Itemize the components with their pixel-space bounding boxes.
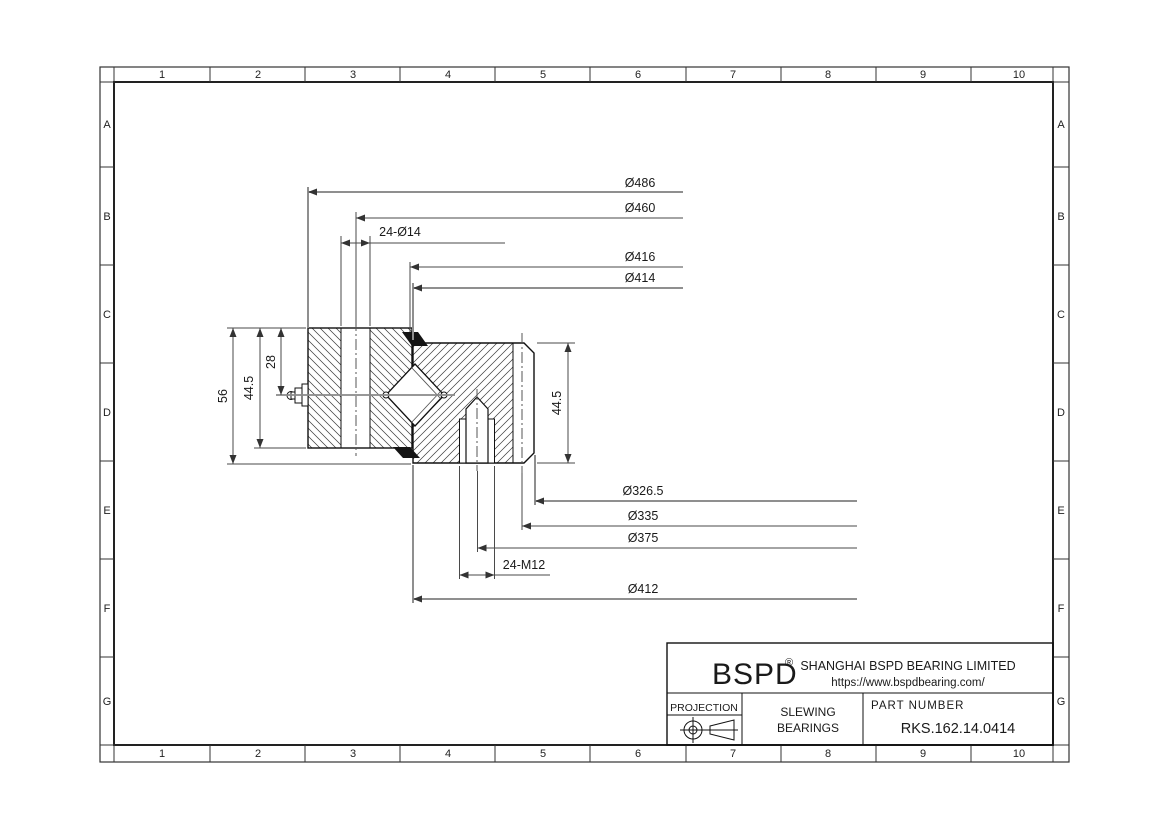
part-number-value: RKS.162.14.0414	[901, 721, 1015, 737]
row-label-right: C	[1057, 309, 1065, 321]
sheet-frame	[100, 67, 1069, 762]
row-label-left: D	[103, 407, 111, 419]
row-label-left: C	[103, 309, 111, 321]
outer-border	[100, 67, 1069, 762]
engineering-drawing-canvas: 1 2 3 4 5 6 7 8 9 10 1 2 3 4 5 6 7 8 9 1…	[0, 0, 1170, 827]
col-label-bottom: 3	[350, 748, 356, 760]
dim-label-414: Ø414	[625, 271, 656, 285]
dim-label-44-5-right: 44.5	[550, 391, 564, 415]
col-label-top: 10	[1013, 69, 1025, 81]
col-label-top: 2	[255, 69, 261, 81]
part-number-label: PART NUMBER	[871, 700, 964, 712]
row-label-left: F	[104, 603, 111, 615]
col-label-top: 5	[540, 69, 546, 81]
col-label-bottom: 1	[159, 748, 165, 760]
product-type-line1: SLEWING	[780, 705, 835, 719]
dim-label-56: 56	[216, 389, 230, 403]
dim-label-24xm12: 24-M12	[503, 558, 545, 572]
row-label-right: F	[1058, 603, 1065, 615]
dim-label-416: Ø416	[625, 250, 656, 264]
col-label-top: 3	[350, 69, 356, 81]
projection-label: PROJECTION	[670, 702, 738, 714]
col-label-top: 4	[445, 69, 451, 81]
col-label-bottom: 4	[445, 748, 451, 760]
col-label-bottom: 8	[825, 748, 831, 760]
registered-mark: ®	[785, 657, 793, 669]
row-label-left: E	[103, 505, 110, 517]
title-block: BSPD ® SHANGHAI BSPD BEARING LIMITED htt…	[667, 643, 1053, 745]
bearing-section-view	[276, 320, 534, 473]
frame-corner-stubs	[100, 67, 1069, 762]
col-label-bottom: 10	[1013, 748, 1025, 760]
row-label-right: G	[1057, 696, 1066, 708]
col-label-bottom: 9	[920, 748, 926, 760]
dim-label-412: Ø412	[628, 582, 659, 596]
dim-label-460: Ø460	[625, 201, 656, 215]
dim-label-44-5-left: 44.5	[242, 376, 256, 400]
grid-references: 1 2 3 4 5 6 7 8 9 10 1 2 3 4 5 6 7 8 9 1…	[103, 69, 1066, 760]
row-label-right: A	[1057, 119, 1065, 131]
product-type-line2: BEARINGS	[777, 721, 839, 735]
col-label-top: 8	[825, 69, 831, 81]
column-dividers-top	[210, 67, 971, 82]
row-label-right: B	[1057, 211, 1064, 223]
title-block-dividers	[667, 693, 1053, 745]
company-name: SHANGHAI BSPD BEARING LIMITED	[800, 659, 1015, 673]
row-label-left: G	[103, 696, 112, 708]
row-label-right: D	[1057, 407, 1065, 419]
col-label-top: 6	[635, 69, 641, 81]
inner-border	[114, 82, 1053, 745]
row-label-right: E	[1057, 505, 1064, 517]
col-label-top: 9	[920, 69, 926, 81]
dim-label-24x14: 24-Ø14	[379, 225, 421, 239]
first-angle-projection-icon	[680, 717, 738, 743]
col-label-bottom: 7	[730, 748, 736, 760]
column-dividers-bottom	[210, 745, 971, 762]
dim-label-28: 28	[264, 355, 278, 369]
drawing-sheet: 1 2 3 4 5 6 7 8 9 10 1 2 3 4 5 6 7 8 9 1…	[0, 0, 1170, 827]
col-label-bottom: 2	[255, 748, 261, 760]
dim-label-375: Ø375	[628, 531, 659, 545]
dim-label-326: Ø326.5	[622, 484, 663, 498]
dim-label-486: Ø486	[625, 176, 656, 190]
col-label-bottom: 6	[635, 748, 641, 760]
col-label-bottom: 5	[540, 748, 546, 760]
row-label-left: A	[103, 119, 111, 131]
company-website: https://www.bspdbearing.com/	[831, 677, 985, 689]
row-label-left: B	[103, 211, 110, 223]
dim-label-335: Ø335	[628, 509, 659, 523]
col-label-top: 7	[730, 69, 736, 81]
col-label-top: 1	[159, 69, 165, 81]
